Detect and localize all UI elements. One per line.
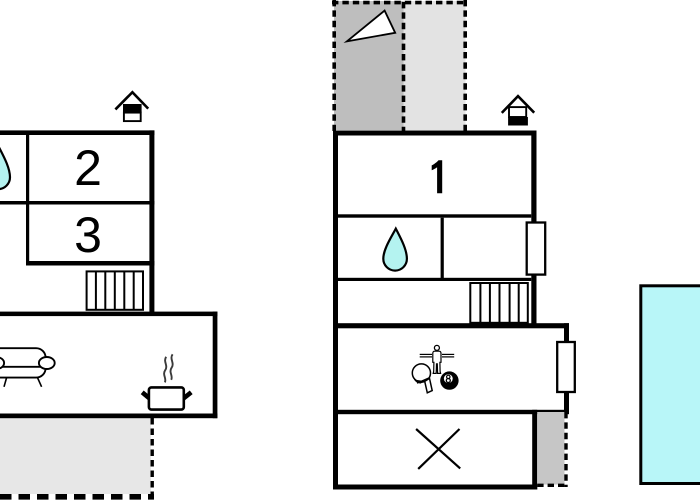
svg-text:2: 2: [74, 140, 102, 196]
svg-text:3: 3: [74, 207, 102, 263]
